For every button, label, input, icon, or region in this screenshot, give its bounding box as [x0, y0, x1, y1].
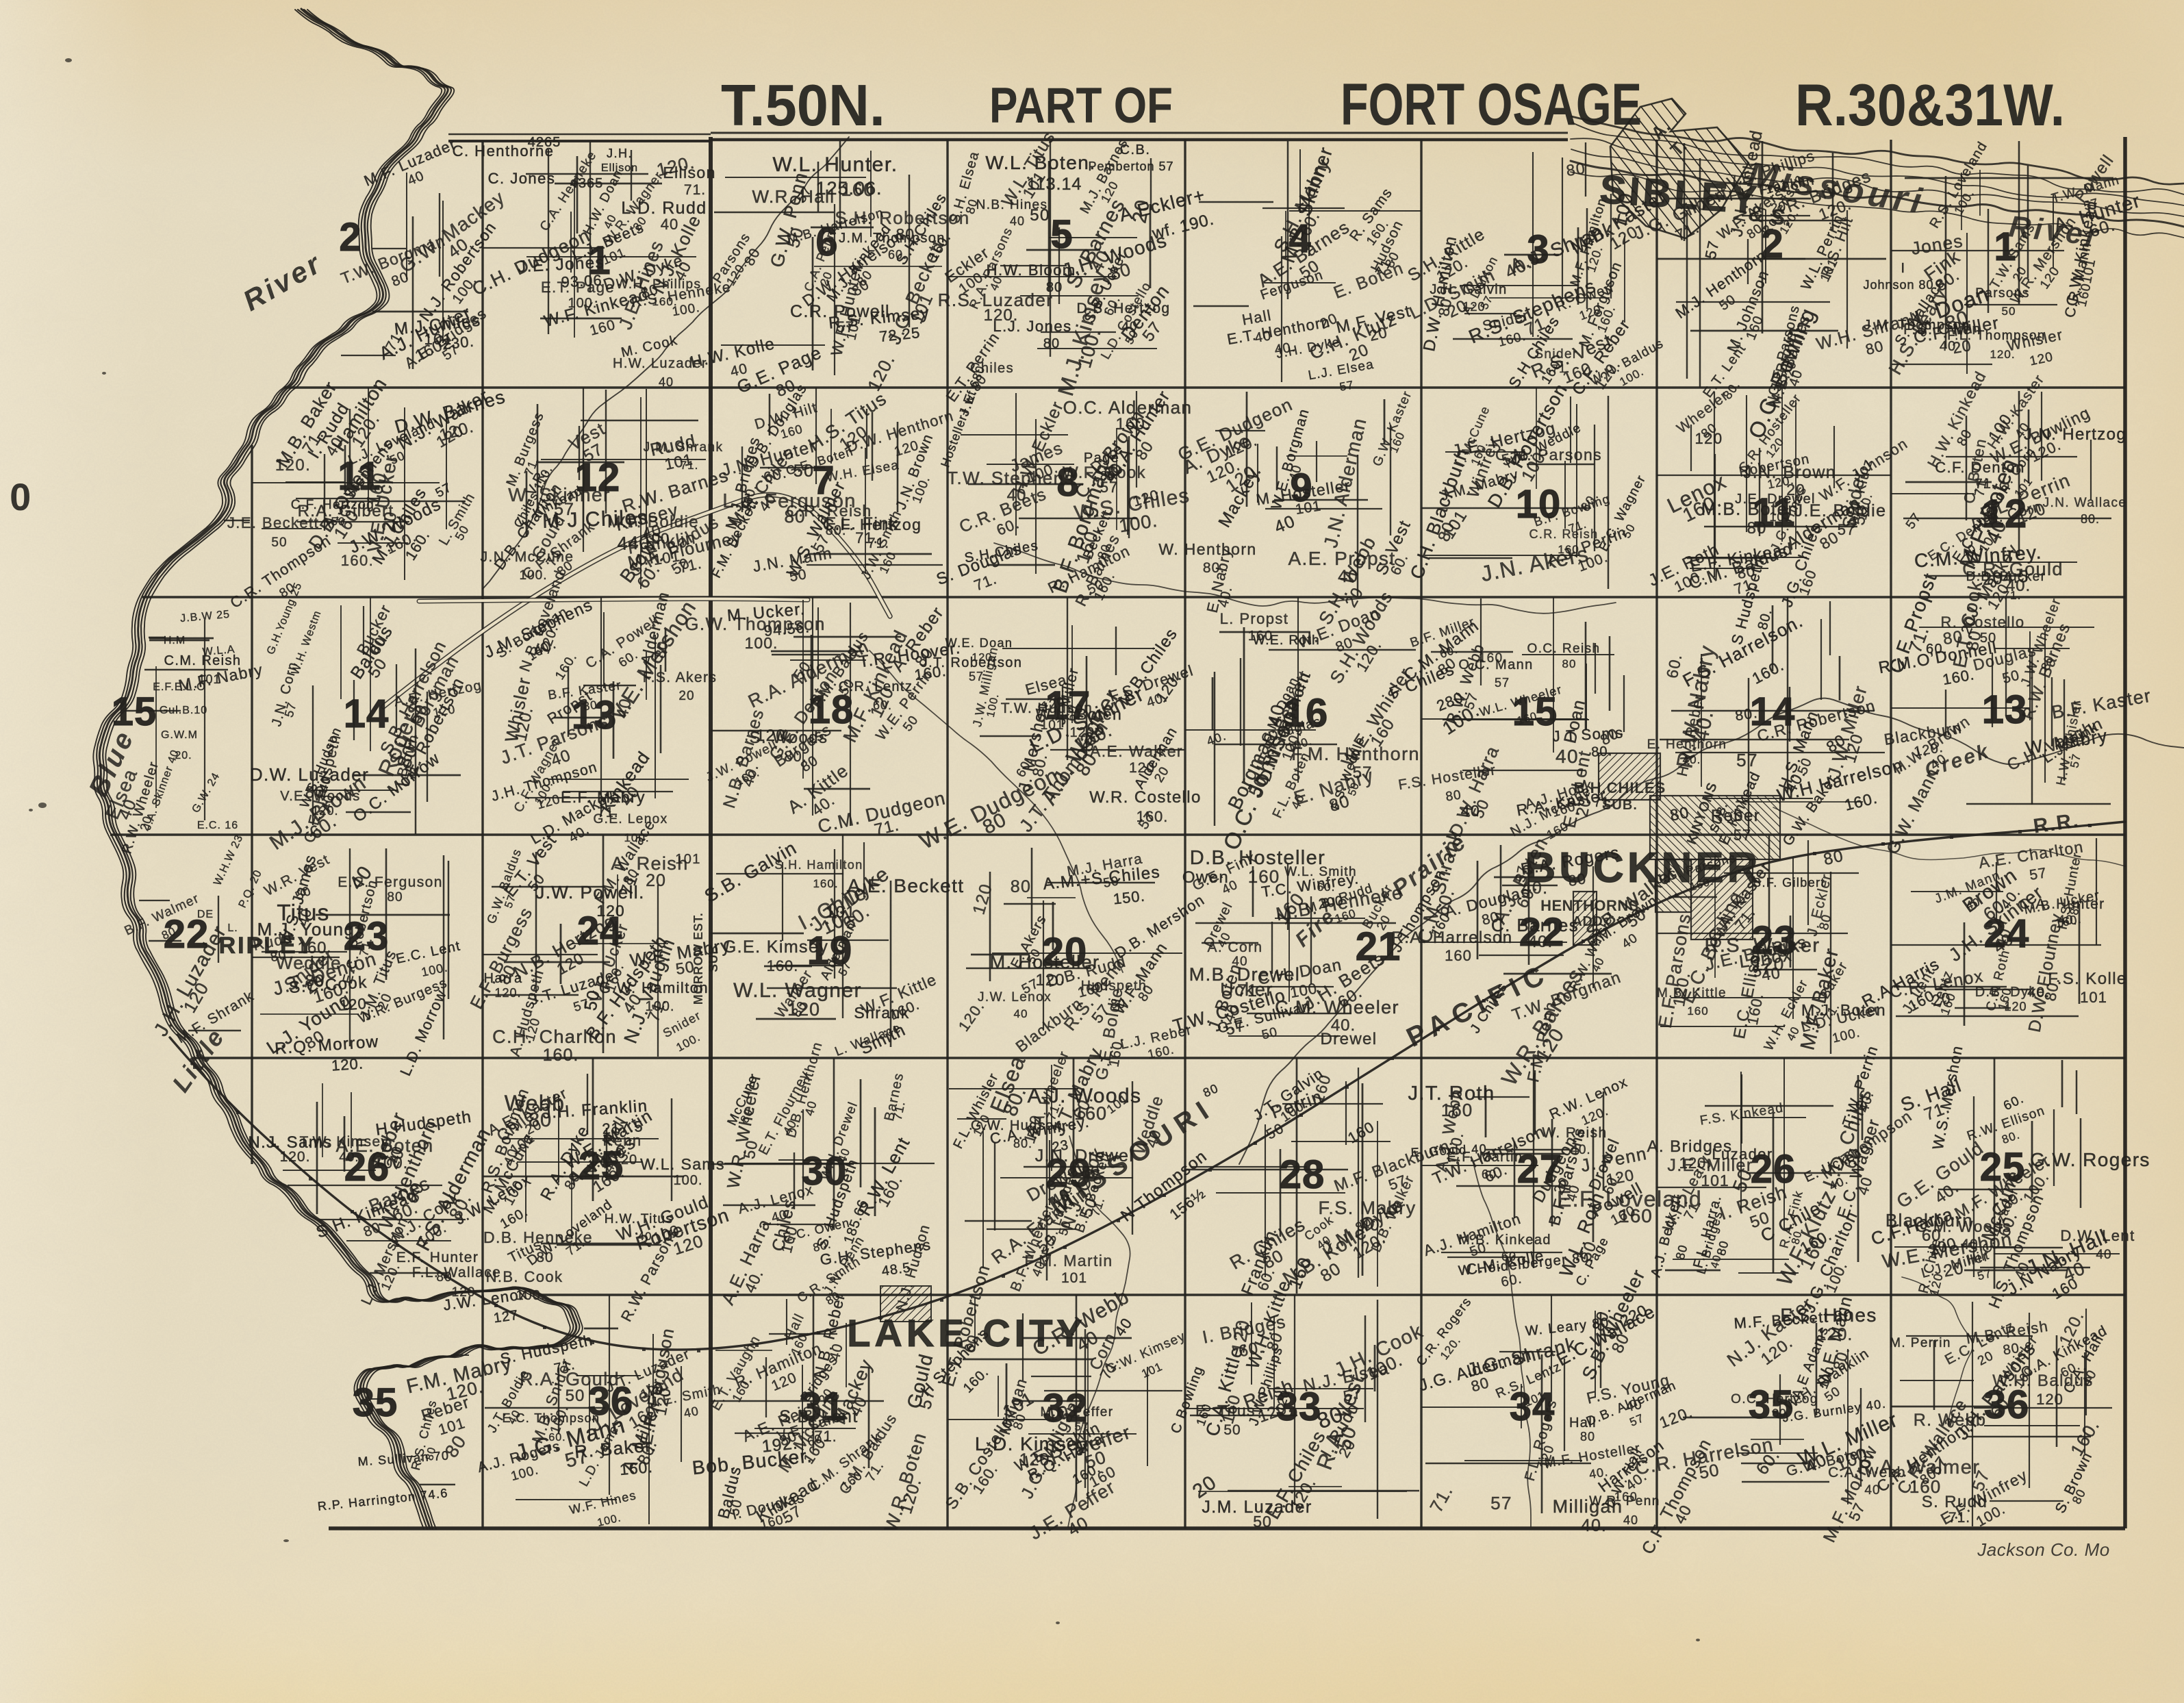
- svg-text:40.: 40.: [1683, 753, 1701, 766]
- svg-text:40: 40: [1461, 802, 1480, 820]
- svg-text:FORT OSAGE: FORT OSAGE: [1341, 72, 1642, 138]
- svg-text:80.: 80.: [1203, 560, 1225, 576]
- svg-text:160: 160: [297, 939, 327, 957]
- svg-text:120: 120: [2004, 1000, 2027, 1013]
- svg-text:14: 14: [344, 692, 390, 736]
- svg-text:101: 101: [826, 903, 856, 922]
- svg-text:L.D. Rudd: L.D. Rudd: [621, 199, 707, 218]
- svg-text:101: 101: [675, 852, 701, 867]
- svg-text:160.: 160.: [1479, 651, 1508, 666]
- svg-text:160: 160: [1445, 947, 1472, 964]
- svg-text:40: 40: [1010, 214, 1025, 228]
- svg-text:R.30&31W.: R.30&31W.: [1795, 73, 2065, 138]
- svg-text:60.: 60.: [1926, 642, 1948, 657]
- svg-text:120.: 120.: [280, 1149, 311, 1165]
- svg-text:80: 80: [1043, 336, 1060, 351]
- svg-text:60.: 60.: [1482, 1168, 1501, 1181]
- svg-text:H.M: H.M: [164, 635, 186, 646]
- svg-text:80.: 80.: [2081, 512, 2100, 526]
- svg-text:20: 20: [1786, 481, 1805, 499]
- svg-text:S.H. Hamilton: S.H. Hamilton: [774, 858, 863, 872]
- svg-text:W. Henthorn: W. Henthorn: [1158, 540, 1256, 558]
- svg-text:M.F. Peffer: M.F. Peffer: [1041, 1405, 1114, 1420]
- svg-text:57: 57: [1513, 864, 1531, 883]
- svg-text:E.C. 16: E.C. 16: [197, 820, 238, 831]
- svg-text:T.W. Hudson: T.W. Hudson: [1001, 701, 1093, 716]
- svg-text:I: I: [1901, 261, 1905, 276]
- svg-text:80: 80: [1747, 519, 1767, 538]
- svg-text:40.: 40.: [1581, 1516, 1607, 1535]
- svg-text:Hall: Hall: [1569, 1415, 1597, 1430]
- svg-text:160: 160: [1248, 866, 1280, 887]
- svg-text:80: 80: [536, 1250, 553, 1265]
- svg-text:20: 20: [1128, 197, 1154, 225]
- svg-text:40.: 40.: [1331, 1016, 1356, 1035]
- svg-text:F.S. Akers: F.S. Akers: [643, 670, 718, 685]
- svg-text:160.: 160.: [1137, 808, 1169, 825]
- svg-text:120.: 120.: [275, 456, 311, 475]
- svg-text:50: 50: [566, 1387, 585, 1405]
- svg-text:J.N. Brown: J.N. Brown: [1743, 463, 1836, 482]
- svg-text:E.F. Hunter: E.F. Hunter: [396, 1250, 479, 1265]
- svg-text:35: 35: [353, 1380, 398, 1425]
- svg-text:Milligan: Milligan: [1553, 1496, 1623, 1517]
- svg-text:80: 80: [1773, 1406, 1787, 1420]
- svg-text:M. Perrin: M. Perrin: [1890, 1336, 1951, 1350]
- svg-text:0: 0: [10, 475, 31, 518]
- svg-text:E. Henthorn: E. Henthorn: [1647, 737, 1727, 752]
- svg-text:A. Bridges: A. Bridges: [1647, 1137, 1733, 1156]
- svg-text:57: 57: [1736, 750, 1758, 770]
- svg-text:C. Jones: C. Jones: [488, 170, 556, 187]
- svg-text:57: 57: [837, 318, 854, 336]
- svg-text:Gul.B.10: Gul.B.10: [160, 705, 207, 716]
- svg-text:80: 80: [1445, 787, 1462, 804]
- svg-text:N.B. Cook: N.B. Cook: [486, 1268, 563, 1285]
- svg-text:G.W. Thompson: G.W. Thompson: [685, 614, 826, 634]
- svg-text:20: 20: [646, 871, 666, 890]
- svg-text:40.: 40.: [2006, 577, 2031, 595]
- svg-text:L. Propst: L. Propst: [1220, 610, 1289, 627]
- svg-text:4265: 4265: [528, 135, 561, 150]
- svg-text:100.: 100.: [745, 634, 778, 652]
- svg-text:80: 80: [529, 1109, 552, 1131]
- svg-text:D.B. Henneke: D.B. Henneke: [483, 1228, 593, 1246]
- svg-text:40.: 40.: [339, 1150, 359, 1165]
- svg-text:80: 80: [1011, 877, 1032, 896]
- svg-text:E.C. Ferguson: E.C. Ferguson: [338, 874, 443, 890]
- svg-text:71.: 71.: [867, 535, 889, 551]
- svg-text:F.L. Thompson: F.L. Thompson: [1947, 329, 2046, 343]
- svg-text:100.: 100.: [516, 1288, 546, 1303]
- svg-text:40.: 40.: [1528, 933, 1553, 951]
- svg-text:57: 57: [969, 670, 984, 683]
- svg-text:57: 57: [1490, 1493, 1512, 1513]
- svg-text:W.R. Costello: W.R. Costello: [1089, 788, 1202, 807]
- svg-text:40: 40: [1338, 567, 1358, 586]
- svg-text:120.: 120.: [494, 986, 521, 1000]
- svg-text:60.: 60.: [1317, 881, 1336, 894]
- svg-text:80: 80: [387, 890, 403, 905]
- svg-text:50: 50: [674, 957, 696, 978]
- svg-text:M.B. Kinkead: M.B. Kinkead: [1458, 1233, 1551, 1248]
- svg-text:80: 80: [1435, 297, 1456, 318]
- svg-text:J.W. Lenox: J.W. Lenox: [978, 990, 1052, 1005]
- svg-text:120: 120: [2036, 1391, 2064, 1408]
- svg-text:W.L. Sams: W.L. Sams: [640, 1155, 725, 1173]
- svg-text:M. Hosteller: M. Hosteller: [990, 952, 1100, 972]
- svg-text:E.C. Thompson: E.C. Thompson: [503, 1411, 600, 1425]
- svg-text:40: 40: [683, 1404, 700, 1420]
- svg-text:160: 160: [841, 179, 874, 200]
- svg-text:Hudspeth: Hudspeth: [1081, 979, 1147, 994]
- svg-text:101: 101: [2080, 989, 2107, 1006]
- svg-text:C.F. Hertzog: C.F. Hertzog: [823, 516, 922, 533]
- svg-text:E.T. Page: E.T. Page: [541, 279, 615, 296]
- svg-text:80: 80: [1668, 803, 1691, 824]
- svg-text:120.: 120.: [1679, 1155, 1712, 1172]
- svg-text:80: 80: [1580, 1430, 1595, 1443]
- svg-text:40: 40: [1556, 746, 1579, 767]
- svg-text:2: 2: [339, 215, 361, 260]
- svg-text:160.: 160.: [813, 877, 838, 890]
- svg-text:80.: 80.: [1013, 1137, 1032, 1150]
- svg-text:71.: 71.: [814, 1428, 837, 1445]
- svg-text:J.H.: J.H.: [607, 147, 633, 160]
- svg-text:71.: 71.: [684, 182, 706, 198]
- svg-text:Penn: Penn: [603, 1132, 642, 1149]
- svg-text:O.C. Reish: O.C. Reish: [1527, 642, 1601, 656]
- svg-text:W.L. Smith: W.L. Smith: [1284, 865, 1357, 879]
- svg-text:E.F. Mabry: E.F. Mabry: [561, 788, 646, 806]
- svg-text:20: 20: [621, 1152, 637, 1168]
- svg-text:101: 101: [1061, 1270, 1087, 1286]
- svg-text:40: 40: [1623, 1513, 1638, 1527]
- svg-text:40: 40: [659, 375, 674, 389]
- svg-text:J.N. Hertzog: J.N. Hertzog: [2024, 425, 2126, 444]
- svg-text:101: 101: [1041, 718, 1065, 733]
- svg-text:T.W. Kimsey: T.W. Kimsey: [300, 1134, 390, 1150]
- svg-text:20: 20: [1931, 989, 1953, 1009]
- svg-text:W.E. Doan: W.E. Doan: [945, 636, 1013, 650]
- svg-text:120.: 120.: [1990, 348, 2015, 361]
- svg-text:160: 160: [1687, 1005, 1708, 1018]
- svg-text:T.50N.: T.50N.: [721, 73, 885, 138]
- svg-text:50: 50: [740, 1138, 761, 1160]
- svg-text:Jackson Co. Mo: Jackson Co. Mo: [1977, 1539, 2109, 1560]
- svg-text:50: 50: [1223, 1422, 1241, 1438]
- svg-text:Chiles: Chiles: [970, 361, 1014, 376]
- svg-text:100.: 100.: [674, 1173, 703, 1188]
- svg-text:S.B. Lent: S.B. Lent: [779, 1407, 858, 1426]
- svg-text:D.B. Dyke: D.B. Dyke: [1975, 985, 2046, 1000]
- svg-text:57: 57: [2029, 865, 2048, 883]
- svg-text:Parsons: Parsons: [1975, 286, 2030, 301]
- svg-text:160: 160: [1441, 1100, 1473, 1120]
- svg-text:R.A. Harrelson: R.A. Harrelson: [1392, 929, 1513, 947]
- svg-text:160.: 160.: [543, 1046, 579, 1065]
- svg-text:50: 50: [271, 535, 287, 550]
- svg-text:20: 20: [379, 509, 401, 533]
- svg-text:W.R. Hall: W.R. Hall: [752, 186, 835, 207]
- svg-text:40: 40: [1014, 1007, 1028, 1020]
- svg-text:150.: 150.: [1113, 887, 1146, 908]
- svg-text:PART OF: PART OF: [989, 78, 1173, 134]
- svg-text:28: 28: [1280, 1152, 1325, 1197]
- svg-text:G.E. Kimsey: G.E. Kimsey: [723, 937, 828, 957]
- svg-text:A.E. Propst: A.E. Propst: [1288, 548, 1395, 569]
- svg-text:160.: 160.: [767, 957, 799, 974]
- svg-text:F.M. Martin: F.M. Martin: [1024, 1252, 1113, 1270]
- svg-text:20: 20: [678, 689, 694, 703]
- svg-text:120.: 120.: [331, 1055, 364, 1074]
- svg-text:80: 80: [1736, 562, 1756, 582]
- svg-text:60.: 60.: [1501, 1250, 1521, 1263]
- svg-text:50: 50: [793, 462, 815, 481]
- svg-text:80.: 80.: [1734, 705, 1759, 724]
- svg-text:C.R. Lentz: C.R. Lentz: [839, 679, 913, 694]
- svg-text:50: 50: [1102, 874, 1120, 891]
- svg-text:40: 40: [1961, 1237, 1978, 1252]
- svg-text:160.: 160.: [652, 295, 677, 308]
- svg-text:50: 50: [788, 566, 808, 585]
- svg-text:80: 80: [1562, 657, 1577, 670]
- svg-text:57: 57: [1338, 378, 1355, 393]
- svg-text:40: 40: [1232, 955, 1247, 969]
- svg-text:120: 120: [452, 1285, 476, 1300]
- svg-text:120: 120: [1035, 971, 1065, 989]
- svg-text:O.C. Hertzog: O.C. Hertzog: [1731, 1392, 1818, 1406]
- svg-text:15: 15: [112, 690, 157, 734]
- svg-text:120.: 120.: [972, 652, 995, 664]
- svg-text:120.: 120.: [984, 306, 1019, 325]
- svg-text:50: 50: [1030, 206, 1050, 225]
- svg-text:R. Costello: R. Costello: [1941, 614, 2025, 631]
- svg-text:E.F. Martin: E.F. Martin: [1447, 1150, 1523, 1165]
- svg-text:60.: 60.: [548, 1432, 566, 1443]
- svg-text:80.: 80.: [1110, 997, 1130, 1011]
- svg-text:G.W.M: G.W.M: [161, 729, 198, 741]
- svg-text:80: 80: [785, 506, 806, 527]
- svg-text:60.: 60.: [873, 698, 892, 712]
- svg-text:57: 57: [2068, 753, 2083, 769]
- svg-text:Ucker: Ucker: [1220, 979, 1273, 1000]
- svg-text:A. Corn: A. Corn: [1208, 939, 1263, 955]
- svg-text:80: 80: [1565, 159, 1587, 179]
- svg-text:40: 40: [661, 216, 678, 233]
- svg-text:50: 50: [2002, 305, 2016, 318]
- svg-text:71.: 71.: [1594, 796, 1615, 810]
- svg-text:DE: DE: [197, 909, 214, 920]
- svg-text:J.N. Wallace: J.N. Wallace: [2043, 496, 2127, 510]
- svg-text:W.E. Roth: W.E. Roth: [1253, 633, 1320, 648]
- svg-text:80: 80: [1566, 870, 1587, 890]
- svg-text:57: 57: [1495, 676, 1510, 690]
